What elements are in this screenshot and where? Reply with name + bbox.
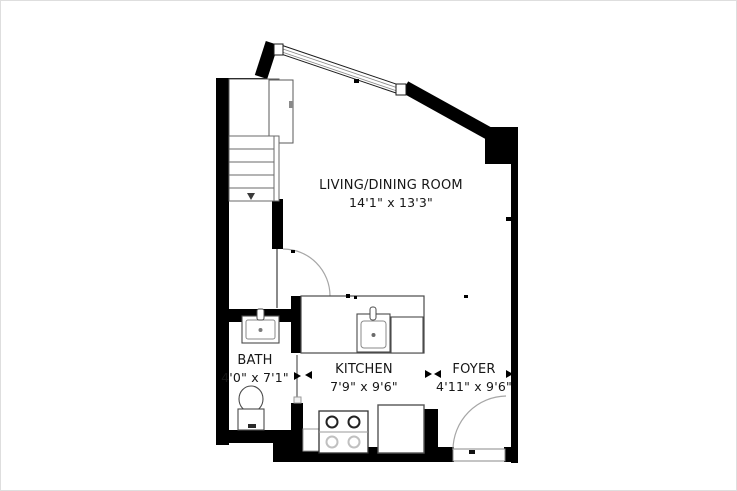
wall-stair-closet <box>272 199 283 249</box>
wall-top-left-angled <box>261 43 272 77</box>
room-name: KITCHEN <box>330 361 398 378</box>
kitchen-sink-icon <box>357 307 390 352</box>
wall-right <box>511 161 518 463</box>
room-label-foyer: FOYER 4'11" x 9'6" <box>436 361 512 395</box>
refrigerator-icon <box>378 405 424 453</box>
window-icon <box>274 44 406 95</box>
entry-door-icon <box>453 396 506 461</box>
room-name: BATH <box>221 352 289 369</box>
room-dimensions: 14'1" x 13'3" <box>319 194 463 211</box>
room-label-bath: BATH 4'0" x 7'1" <box>221 352 289 386</box>
room-label-kitchen: KITCHEN 7'9" x 9'6" <box>330 361 398 395</box>
room-dimensions: 4'11" x 9'6" <box>436 378 512 395</box>
wall-left <box>216 78 229 445</box>
range-icon <box>303 411 368 453</box>
room-dimensions: 7'9" x 9'6" <box>330 378 398 395</box>
dimension-tick <box>464 295 468 298</box>
wall-top-right-diagonal <box>405 87 497 138</box>
wall-kitchen-foyer-stub <box>424 409 438 449</box>
floor-plan: LIVING/DINING ROOM 14'1" x 13'3" BATH 4'… <box>0 0 737 491</box>
closet-icon <box>229 79 293 143</box>
dimension-marker <box>354 296 357 299</box>
wall-step-connector <box>273 430 293 462</box>
dimension-arrow <box>425 370 432 378</box>
wall-bath-right-lower <box>291 403 303 448</box>
dimension-tick <box>291 250 295 253</box>
dishwasher-icon <box>391 317 423 353</box>
wall-corner-column <box>485 127 518 164</box>
dimension-marker <box>346 294 350 298</box>
toilet-icon <box>238 386 264 430</box>
dimension-tick <box>506 217 512 221</box>
room-name: LIVING/DINING ROOM <box>319 177 463 194</box>
room-dimensions: 4'0" x 7'1" <box>221 369 289 386</box>
dimension-tick <box>354 79 359 83</box>
room-name: FOYER <box>436 361 512 378</box>
staircase-icon <box>229 136 279 201</box>
kitchen-counter-icon <box>301 294 424 353</box>
floor-plan-drawing <box>1 1 737 491</box>
room-label-living-dining: LIVING/DINING ROOM 14'1" x 13'3" <box>319 177 463 211</box>
dimension-arrow <box>305 371 312 379</box>
wall-bottom-right-corner <box>504 447 518 462</box>
